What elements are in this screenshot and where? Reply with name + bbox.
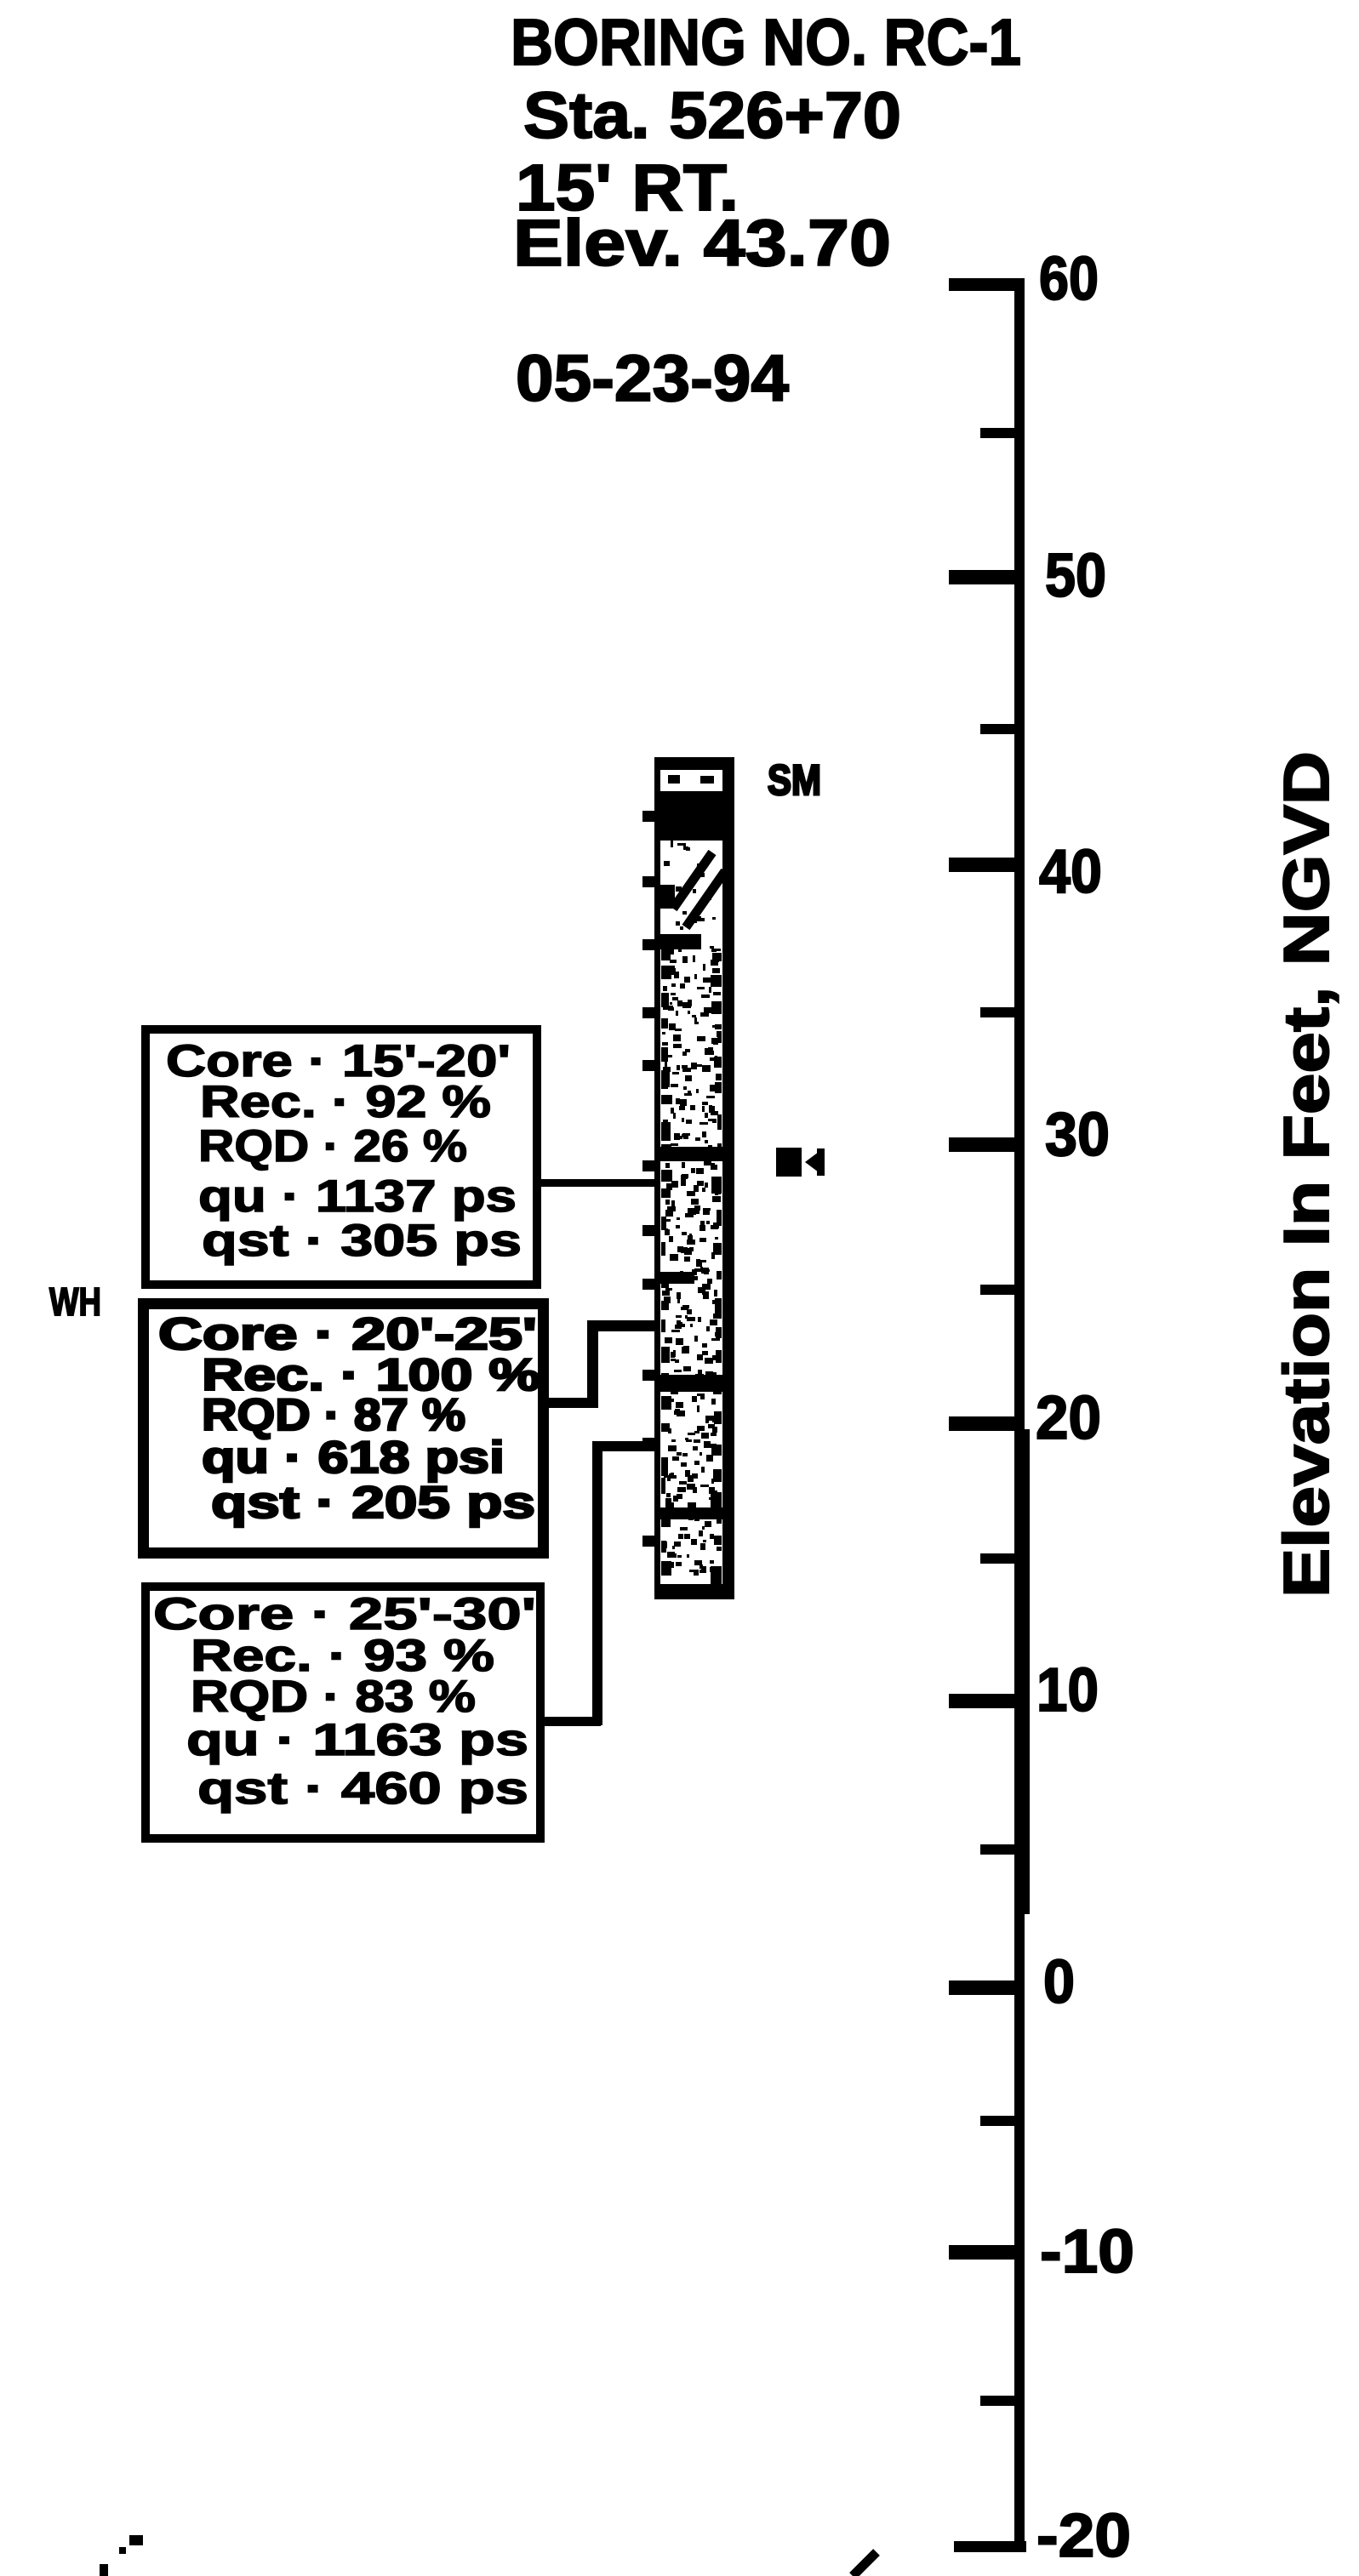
svg-text:SM: SM [768,756,821,804]
svg-text:qu · 1137 ps: qu · 1137 ps [198,1171,517,1222]
svg-text:60: 60 [1039,245,1099,313]
svg-text:30: 30 [1045,1101,1110,1169]
svg-text:10: 10 [1036,1656,1099,1724]
svg-text:0: 0 [1043,1948,1075,2016]
svg-text:qst · 460 ps: qst · 460 ps [197,1764,528,1814]
svg-text:Elev. 43.70: Elev. 43.70 [513,207,891,280]
svg-text:-20: -20 [1036,2502,1131,2570]
svg-text:WH: WH [49,1279,101,1324]
svg-text:40: 40 [1039,838,1102,906]
svg-text:qst · 305 ps: qst · 305 ps [202,1216,522,1266]
svg-text:qst · 205 ps: qst · 205 ps [211,1478,535,1528]
svg-text:50: 50 [1045,542,1106,610]
svg-text:BORING NO. RC-1: BORING NO. RC-1 [511,6,1021,79]
svg-text:Elevation In Feet, NGVD: Elevation In Feet, NGVD [1270,751,1342,1598]
svg-text:Rec. · 92 %: Rec. · 92 % [200,1077,491,1127]
svg-text:05-23-94: 05-23-94 [516,342,789,415]
svg-text:20: 20 [1036,1384,1101,1452]
svg-text:qu · 1163 ps: qu · 1163 ps [186,1715,528,1765]
svg-text:qu · 618 psi: qu · 618 psi [202,1433,505,1483]
svg-text:Sta. 526+70: Sta. 526+70 [523,79,901,152]
svg-text:-10: -10 [1040,2218,1134,2286]
svg-text:RQD · 26 %: RQD · 26 % [198,1121,467,1171]
